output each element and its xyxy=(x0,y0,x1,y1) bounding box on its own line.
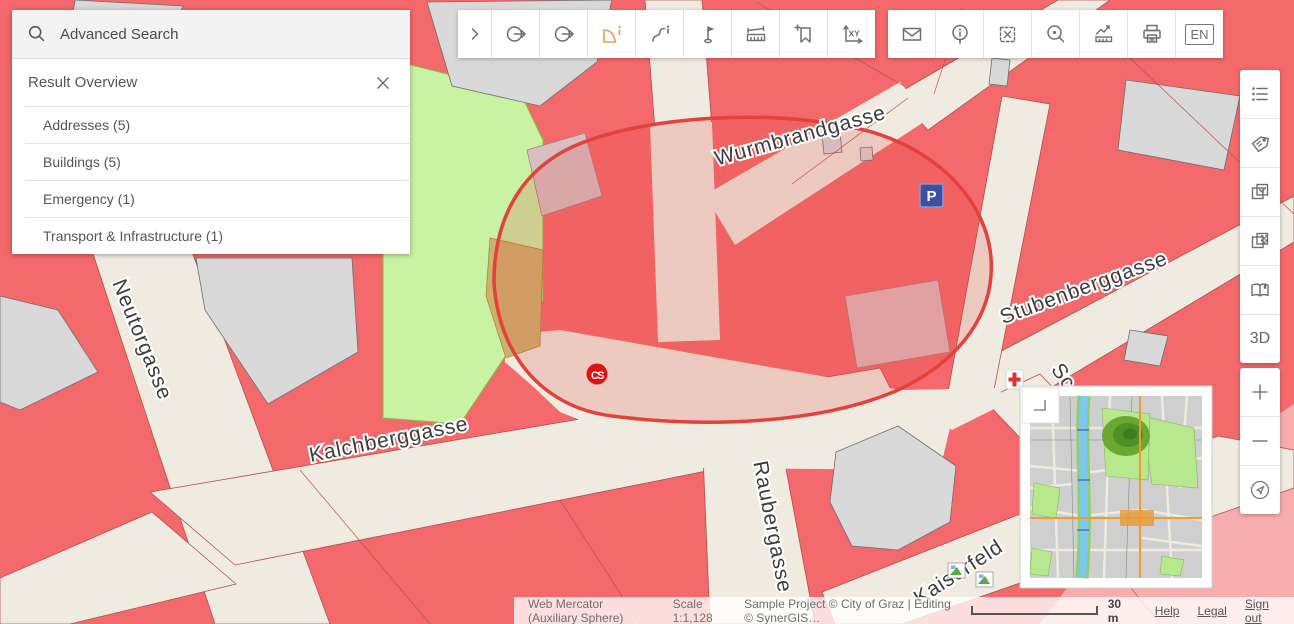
zoom-out-icon xyxy=(1248,429,1272,453)
sign-out-link[interactable]: Sign out xyxy=(1245,597,1282,624)
profile-button[interactable] xyxy=(1079,10,1127,58)
locate-icon xyxy=(1247,477,1273,503)
locate-button[interactable] xyxy=(1240,465,1280,514)
info-icon xyxy=(947,21,973,47)
chevron-right-icon xyxy=(465,24,485,44)
next-extent-button[interactable] xyxy=(539,10,587,58)
zoom-controls xyxy=(1240,368,1280,514)
threed-label: 3D xyxy=(1250,330,1270,348)
map-book-icon xyxy=(1248,278,1272,302)
search-icon xyxy=(26,23,48,45)
map-book-button[interactable] xyxy=(1240,265,1280,314)
previous-extent-icon xyxy=(503,21,529,47)
mail-button[interactable] xyxy=(888,10,935,58)
image-placeholder-icon xyxy=(948,563,965,578)
image-placeholder-icon xyxy=(976,572,993,587)
result-category-buildings[interactable]: Buildings (5) xyxy=(25,143,410,180)
copyright-label: Sample Project © City of Graz | Editing … xyxy=(744,597,952,624)
close-icon[interactable] xyxy=(372,72,394,94)
print-icon xyxy=(1139,21,1165,47)
labels-button[interactable] xyxy=(1240,118,1280,167)
place-marker-button[interactable] xyxy=(683,10,731,58)
overview-collapse-button[interactable] xyxy=(1022,388,1059,423)
legend-list-icon xyxy=(1248,82,1272,106)
help-link[interactable]: Help xyxy=(1155,604,1180,618)
overview-map[interactable] xyxy=(1020,386,1212,588)
scale-bar xyxy=(971,606,1098,615)
clear-selection-icon xyxy=(995,21,1021,47)
result-overview-header: Result Overview xyxy=(12,59,410,106)
coordinates-button[interactable]: XY xyxy=(827,10,875,58)
threed-button[interactable]: 3D xyxy=(1240,314,1280,363)
basemap-transparency-icon xyxy=(1248,229,1272,253)
scalebar-distance-label: 30 m xyxy=(1108,597,1131,624)
print-button[interactable] xyxy=(1127,10,1175,58)
label-tag-icon xyxy=(1248,131,1272,155)
status-bar: Web Mercator (Auxiliary Sphere) Scale 1:… xyxy=(514,597,1294,624)
result-category-addresses[interactable]: Addresses (5) xyxy=(25,106,410,143)
legend-button[interactable] xyxy=(1240,70,1280,118)
info-button[interactable] xyxy=(935,10,983,58)
toolbar-secondary: EN xyxy=(888,10,1223,58)
zoom-out-button[interactable] xyxy=(1240,416,1280,465)
mail-icon xyxy=(899,21,925,47)
identify-line-button[interactable] xyxy=(635,10,683,58)
previous-extent-button[interactable] xyxy=(491,10,539,58)
result-category-transport[interactable]: Transport & Infrastructure (1) xyxy=(25,217,410,254)
legal-link[interactable]: Legal xyxy=(1197,604,1226,618)
identify-line-icon xyxy=(647,21,673,47)
search-panel: Advanced Search Result Overview Addresse… xyxy=(12,10,410,254)
expand-toolbar-button[interactable] xyxy=(458,10,491,58)
language-button[interactable]: EN xyxy=(1175,10,1223,58)
clear-selection-button[interactable] xyxy=(983,10,1031,58)
zoom-to-selection-icon xyxy=(1043,21,1069,47)
zoom-in-icon xyxy=(1248,380,1272,404)
search-input[interactable]: Advanced Search xyxy=(60,26,178,43)
result-category-emergency[interactable]: Emergency (1) xyxy=(25,180,410,217)
parking-marker[interactable]: P xyxy=(920,184,943,207)
select-layers-icon xyxy=(1248,180,1272,204)
search-bar[interactable]: Advanced Search xyxy=(12,10,410,59)
language-label: EN xyxy=(1185,24,1213,45)
identify-area-button[interactable] xyxy=(587,10,635,58)
next-extent-icon xyxy=(551,21,577,47)
profile-chart-icon xyxy=(1091,21,1117,47)
flag-marker-icon xyxy=(695,21,721,47)
cs-marker[interactable]: CS xyxy=(587,364,608,385)
toolbar-main: XY xyxy=(458,10,875,58)
result-overview-title: Result Overview xyxy=(28,74,137,91)
svg-text:XY: XY xyxy=(848,29,860,39)
measure-button[interactable] xyxy=(731,10,779,58)
sidebar-tools: 3D xyxy=(1240,70,1280,363)
zoom-to-selection-button[interactable] xyxy=(1031,10,1079,58)
select-layers-button[interactable] xyxy=(1240,167,1280,216)
measure-icon xyxy=(743,21,769,47)
add-bookmark-icon xyxy=(791,21,817,47)
svg-text:P: P xyxy=(926,188,936,205)
identify-area-icon xyxy=(599,21,625,47)
projection-label: Web Mercator (Auxiliary Sphere) xyxy=(528,597,655,624)
svg-text:CS: CS xyxy=(591,370,604,382)
coordinates-xy-icon: XY xyxy=(839,21,865,47)
zoom-in-button[interactable] xyxy=(1240,368,1280,416)
scale-label: Scale 1:1,128 xyxy=(673,597,726,624)
add-bookmark-button[interactable] xyxy=(779,10,827,58)
basemap-button[interactable] xyxy=(1240,216,1280,265)
app-window: Wurmbrandgasse Stubenberggasse Neutorgas… xyxy=(0,0,1294,624)
